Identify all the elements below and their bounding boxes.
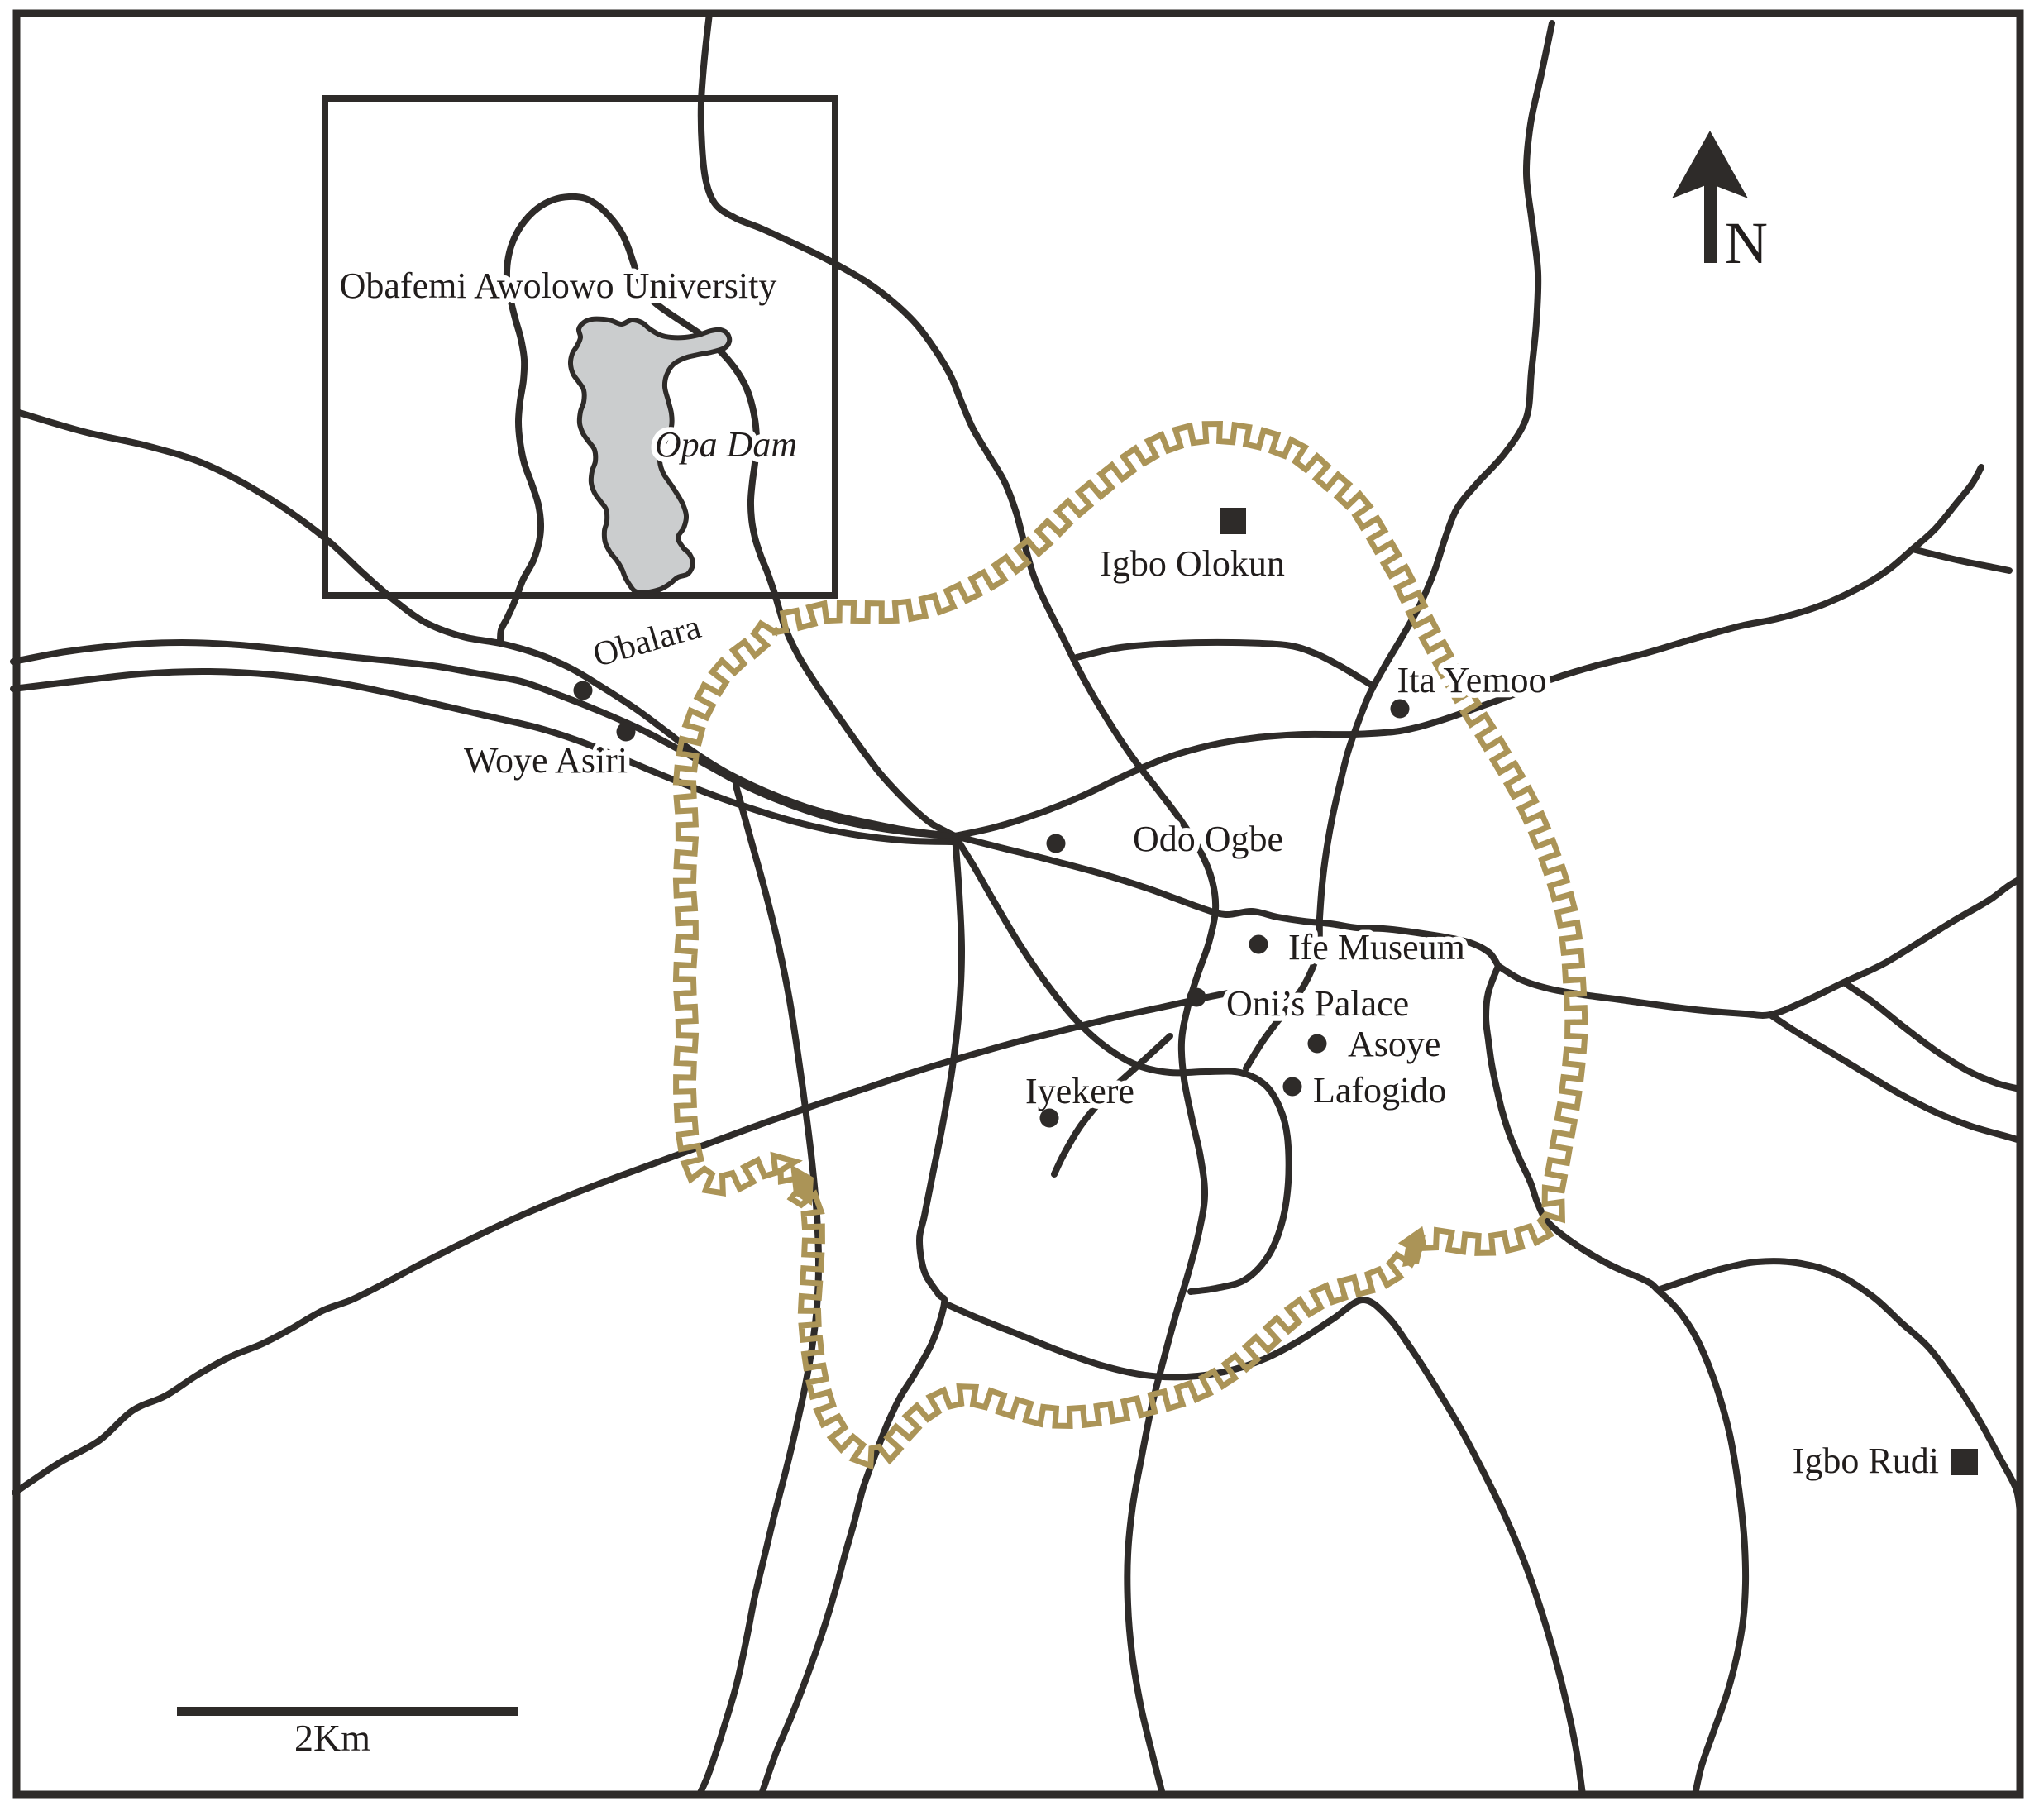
svg-text:2Km: 2Km [294, 1717, 370, 1759]
svg-text:Ita Yemoo: Ita Yemoo [1397, 660, 1547, 700]
svg-text:Iyekere: Iyekere [1025, 1071, 1134, 1111]
svg-text:Lafogido: Lafogido [1313, 1070, 1446, 1111]
svg-text:Ife Museum: Ife Museum [1288, 927, 1465, 967]
svg-text:Opa Dam: Opa Dam [655, 424, 797, 465]
svg-text:Odo Ogbe: Odo Ogbe [1133, 819, 1283, 859]
svg-text:Igbo Olokun: Igbo Olokun [1100, 543, 1285, 584]
svg-text:Woye Asiri: Woye Asiri [464, 740, 628, 781]
svg-text:Asoye: Asoye [1348, 1024, 1440, 1064]
svg-text:Obafemi Awolowo University: Obafemi Awolowo University [340, 265, 777, 306]
svg-text:Igbo Rudi: Igbo Rudi [1793, 1440, 1939, 1481]
svg-text:N: N [1725, 210, 1768, 276]
svg-text:Oni’s Palace: Oni’s Palace [1226, 983, 1409, 1024]
